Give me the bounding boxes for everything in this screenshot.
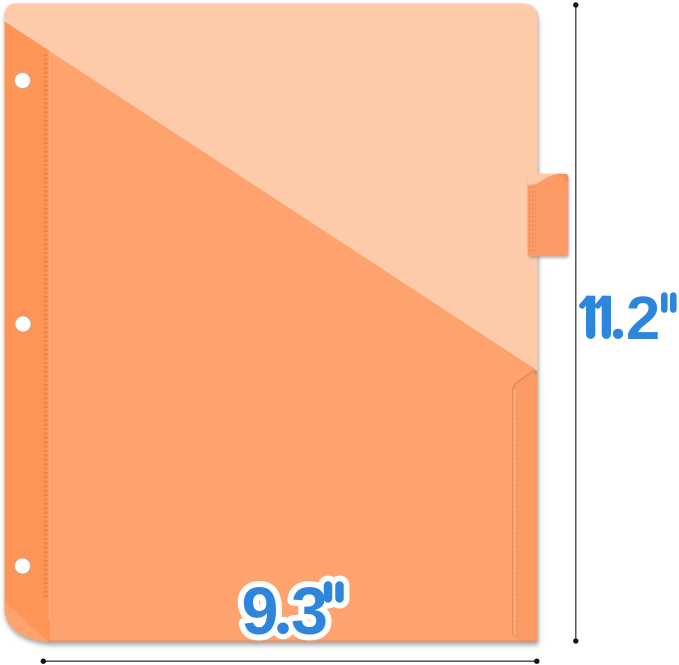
svg-text:2: 2 [626, 284, 660, 353]
svg-text:9: 9 [242, 575, 279, 649]
svg-text:3: 3 [291, 575, 328, 649]
